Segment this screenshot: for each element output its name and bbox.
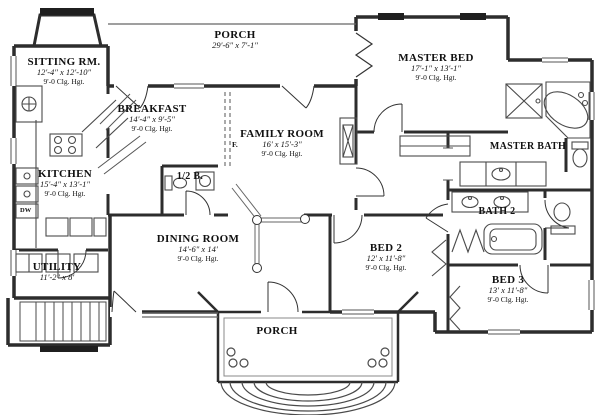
master-bath-fixtures	[460, 82, 594, 186]
stairs	[20, 302, 106, 341]
overhead-beam	[225, 92, 230, 168]
porch-columns	[227, 348, 389, 367]
porch-steps	[221, 382, 395, 415]
porch-walls	[198, 292, 418, 382]
bay-window	[34, 15, 101, 46]
door-swings	[58, 86, 569, 312]
master-closet	[400, 136, 470, 156]
foyer-gallery	[232, 184, 310, 273]
floor-plan: SITTING RM. 12'-4" x 12'-10" 9'-0 Clg. H…	[0, 0, 600, 415]
porch-edge-lines	[108, 24, 392, 376]
half-bath-fixtures	[165, 172, 214, 190]
exterior-walls	[8, 17, 592, 345]
fireplace	[340, 118, 357, 164]
wall-openings	[9, 31, 597, 337]
floor-plan-drawing	[0, 0, 600, 415]
